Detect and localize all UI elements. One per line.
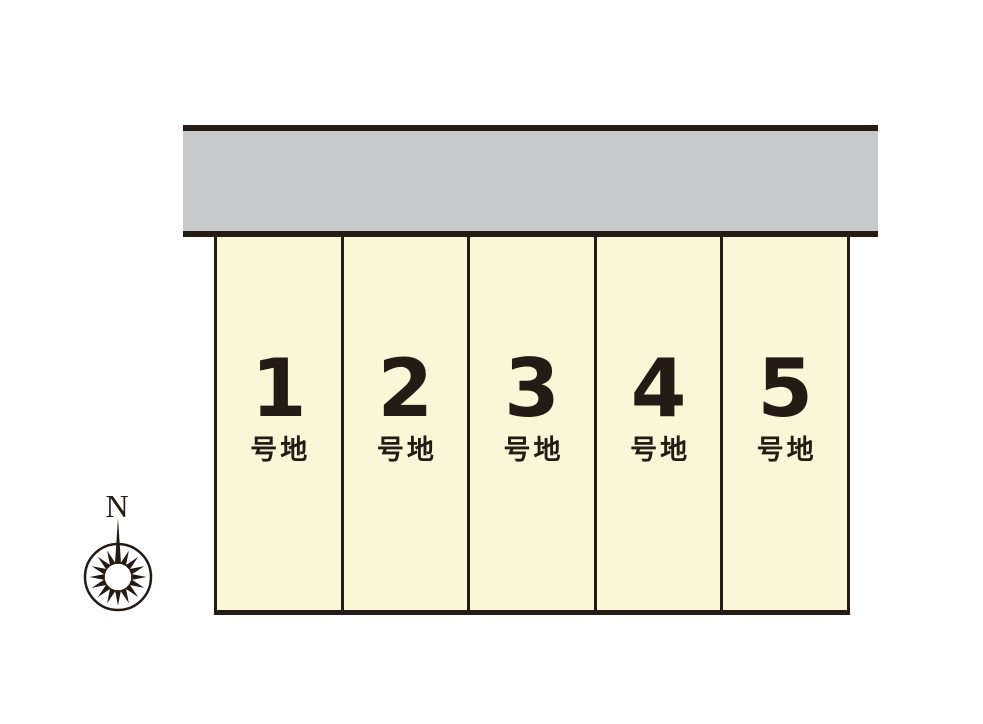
lot-number: 4 xyxy=(631,349,687,429)
compass-sunburst xyxy=(90,518,147,606)
lot-suffix: 号地 xyxy=(757,437,817,464)
lot-number: 2 xyxy=(378,349,434,429)
lot-suffix: 号地 xyxy=(503,437,563,464)
lot-number: 5 xyxy=(757,349,813,429)
compass-north-needle xyxy=(115,518,121,564)
compass-spike xyxy=(120,551,129,566)
lot-5: 5 号地 xyxy=(720,237,847,610)
lot-suffix: 号地 xyxy=(630,437,690,464)
compass-spike xyxy=(107,588,116,603)
compass: N xyxy=(70,486,170,618)
lot-number: 3 xyxy=(504,349,560,429)
lot-3: 3 号地 xyxy=(467,237,594,610)
north-label: N xyxy=(105,488,128,524)
lot-number: 1 xyxy=(251,349,307,429)
lot-1: 1 号地 xyxy=(217,237,341,610)
lot-2: 2 号地 xyxy=(341,237,468,610)
compass-spike xyxy=(115,590,121,605)
lot-suffix: 号地 xyxy=(250,437,310,464)
compass-rose-icon: N xyxy=(70,486,170,618)
lot-4: 4 号地 xyxy=(594,237,721,610)
compass-spike xyxy=(92,566,107,575)
compass-spike xyxy=(92,579,107,588)
compass-spike xyxy=(107,551,116,566)
compass-spike xyxy=(131,574,146,580)
lot-layout-diagram: 1 号地 2 号地 3 号地 4 号地 5 号地 N xyxy=(0,0,983,724)
compass-spike xyxy=(90,574,105,580)
compass-spike xyxy=(129,579,144,588)
lots-container: 1 号地 2 号地 3 号地 4 号地 5 号地 xyxy=(214,237,850,615)
compass-spike xyxy=(120,588,129,603)
lot-suffix: 号地 xyxy=(377,437,437,464)
road xyxy=(183,125,878,237)
compass-spike xyxy=(129,566,144,575)
